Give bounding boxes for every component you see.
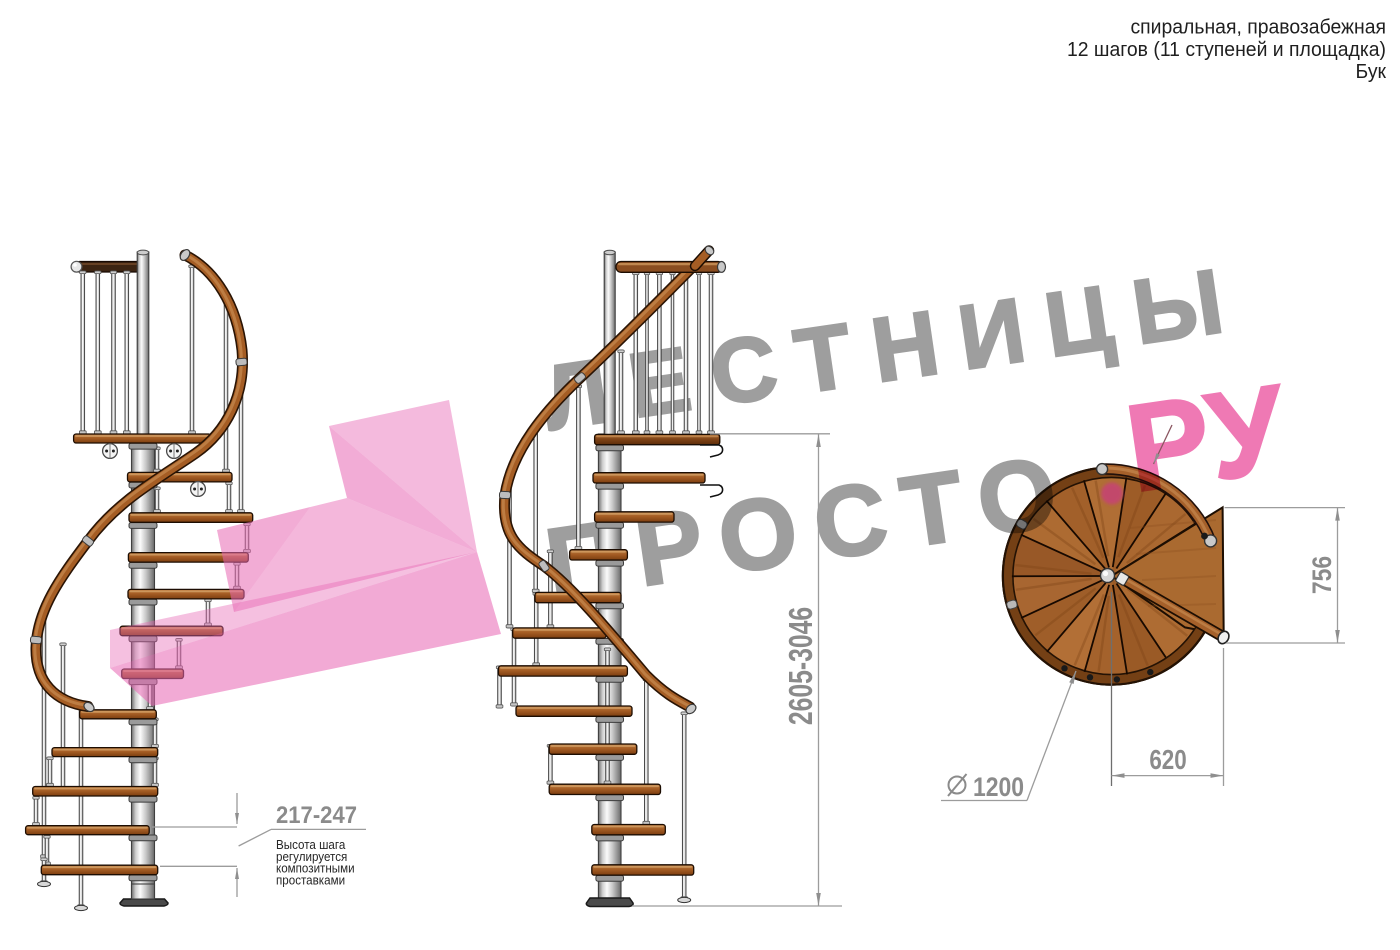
svg-text:Бук: Бук <box>1356 61 1387 83</box>
svg-text:проставками: проставками <box>276 873 345 888</box>
svg-text:620: 620 <box>1149 745 1186 776</box>
svg-text:756: 756 <box>1307 556 1337 594</box>
svg-text:РУ: РУ <box>1118 359 1296 519</box>
svg-text:217-247: 217-247 <box>276 801 357 828</box>
svg-text:12 шагов (11 ступеней и площад: 12 шагов (11 ступеней и площадка) <box>1067 39 1386 61</box>
svg-text:спиральная, правозабежная: спиральная, правозабежная <box>1130 16 1386 38</box>
svg-text:1200: 1200 <box>973 772 1024 802</box>
svg-text:2605-3046: 2605-3046 <box>784 607 820 725</box>
